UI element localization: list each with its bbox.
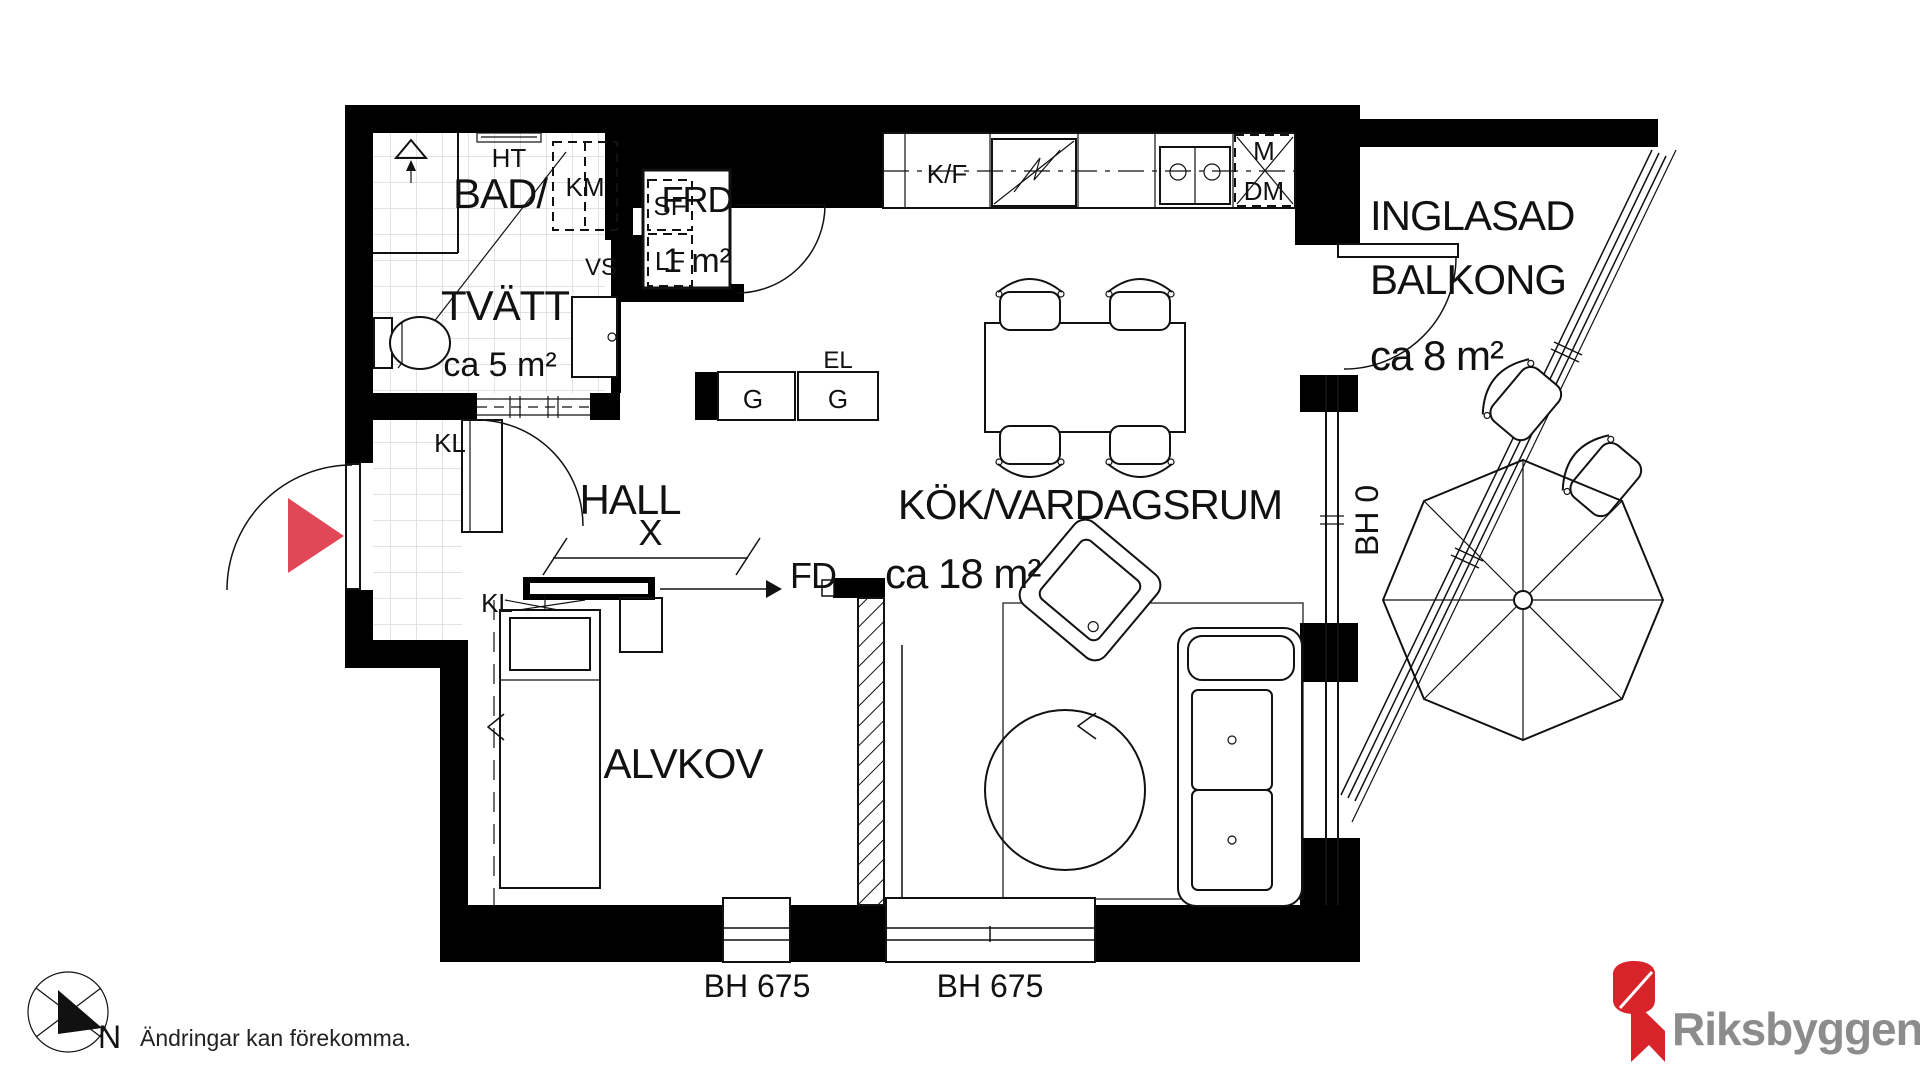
entrance-arrow-icon	[288, 498, 344, 573]
bathroom-area: ca 5 m²	[443, 346, 556, 384]
sink-icon	[1160, 147, 1230, 204]
round-table	[985, 710, 1145, 870]
parasol-icon	[1383, 460, 1663, 740]
window-right	[886, 898, 1095, 962]
dining-chair	[1106, 279, 1174, 330]
dining-chair	[1106, 426, 1174, 477]
entrance-closet	[462, 420, 502, 532]
shelf-lower-label: LF	[655, 246, 685, 276]
nightstand	[620, 598, 662, 652]
balcony-chair	[1551, 426, 1648, 524]
alcove-label: ALVKOV	[604, 740, 764, 787]
closet-entrance-label: KL	[434, 428, 466, 458]
stove-icon	[992, 139, 1076, 206]
microwave-label: M	[1253, 136, 1275, 166]
towel-rail-label: HT	[492, 143, 527, 173]
balcony-label-1: INGLASAD	[1370, 192, 1574, 239]
sliding-door-label: FD	[790, 555, 836, 596]
balcony-area: ca 8 m²	[1370, 332, 1504, 379]
disclaimer-text: Ändringar kan förekomma.	[140, 1025, 411, 1051]
kitchen-living-area: ca 18 m²	[885, 550, 1041, 597]
closet-hall-label: KL	[481, 588, 513, 618]
floorplan-page: BAD/ TVÄTT ca 5 m² FRD 1 m² HALL KÖK/VAR…	[0, 0, 1920, 1080]
kitchen-living-label: KÖK/VARDAGSRUM	[898, 481, 1282, 528]
dining-chair	[996, 279, 1064, 330]
compass-north-label: N	[98, 1019, 121, 1055]
hatched-partition	[858, 598, 884, 905]
sofa	[1178, 628, 1302, 906]
balcony-label-2: BALKONG	[1370, 256, 1566, 303]
dishwasher-label: DM	[1244, 176, 1284, 206]
shelf-upper-label: SF	[653, 191, 686, 221]
toilet-icon	[374, 317, 450, 369]
cabinet-right-label: G	[828, 384, 848, 414]
fridge-freezer-label: K/F	[927, 159, 967, 189]
sliding-door-arrow-icon	[766, 580, 782, 598]
bathroom-label-2: TVÄTT	[441, 282, 569, 329]
washing-machine-label: KM	[566, 172, 605, 202]
dining-chair	[996, 426, 1064, 477]
riksbyggen-logo-text: Riksbyggen	[1672, 1003, 1920, 1055]
cabinet-left-label: G	[743, 384, 763, 414]
storage-door-arc	[737, 205, 825, 293]
dining-group	[985, 279, 1185, 477]
bathroom-threshold	[477, 393, 590, 420]
balcony-window-height: BH 0	[1349, 485, 1385, 556]
bathroom-label-1: BAD/	[453, 170, 548, 217]
hall-label: HALL	[579, 476, 680, 523]
window-height-right: BH 675	[937, 968, 1044, 1004]
bed	[500, 610, 600, 888]
chevron-left-icon	[1078, 713, 1096, 739]
bottom-windows	[723, 898, 1095, 962]
electrical-label: EL	[823, 347, 852, 374]
riksbyggen-logo: Riksbyggen	[1613, 961, 1920, 1062]
riksbyggen-logo-mark	[1613, 961, 1665, 1062]
dining-table	[985, 323, 1185, 432]
window-left	[723, 898, 790, 962]
floorplan-drawing: BAD/ TVÄTT ca 5 m² FRD 1 m² HALL KÖK/VAR…	[0, 0, 1920, 1080]
bathroom-door-arc	[477, 420, 583, 526]
dimension-x-label: X	[638, 512, 662, 553]
water-heater-label: VS	[585, 254, 617, 281]
window-height-left: BH 675	[704, 968, 811, 1004]
compass-icon	[28, 972, 108, 1052]
bathroom-door-leaf	[572, 297, 617, 377]
